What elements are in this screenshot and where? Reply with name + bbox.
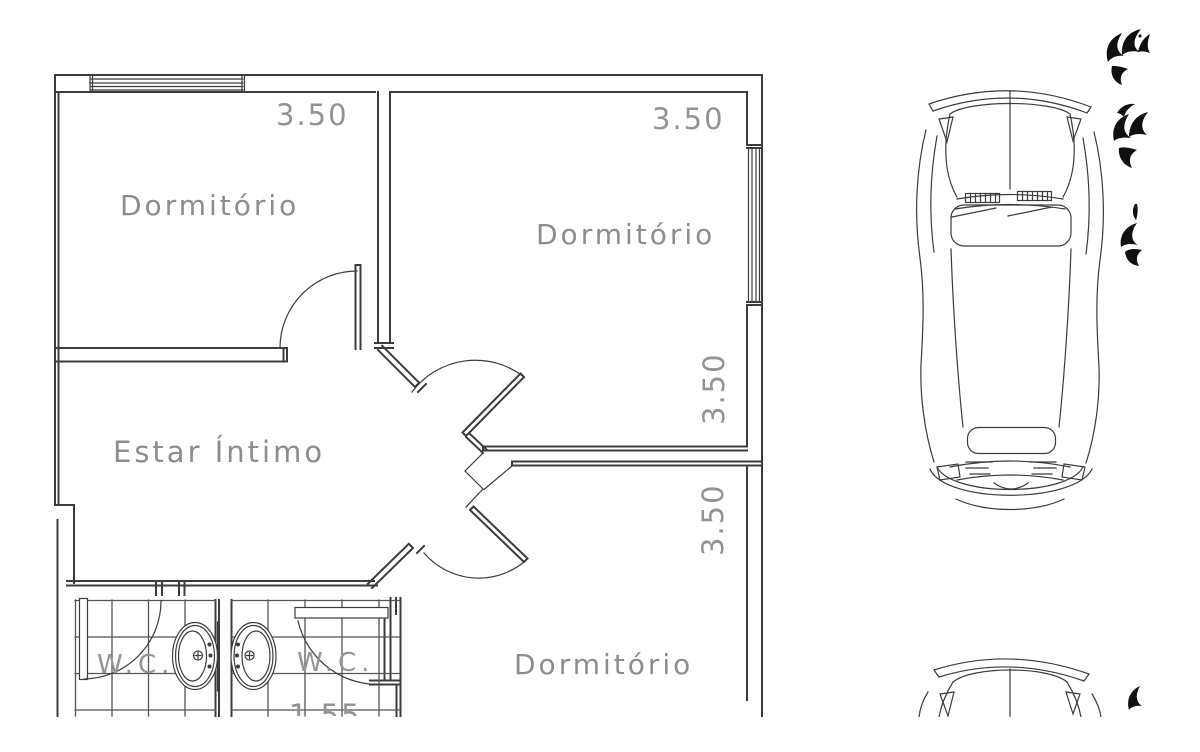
sink-right: [231, 623, 276, 690]
window-top: [90, 76, 245, 93]
room-label-dormitorio-2: Dormitório: [536, 221, 715, 249]
window-right: [749, 148, 760, 302]
dimension-label-bottom-clipped-wrap: 1.55: [289, 701, 367, 716]
room-label-wc-2: W.C.: [297, 650, 374, 676]
room-label-estar-intimo: Estar Íntimo: [113, 438, 325, 467]
walls: [55, 75, 762, 716]
dimension-label-top-left: 3.50: [276, 101, 349, 130]
car-top-view: [917, 91, 1104, 510]
dimension-label-right-upper: 3.50: [700, 353, 734, 425]
floor-plan-page: Dormitório Dormitório Dormitório Estar Í…: [0, 0, 1200, 752]
dimension-label-top-right: 3.50: [652, 105, 725, 134]
floor-plan-drawing: [0, 0, 1200, 752]
sink-left: [173, 622, 218, 691]
car-front-partial: [919, 659, 1101, 717]
room-label-dormitorio-3: Dormitório: [514, 651, 693, 679]
dimension-label-bottom-partial: 1.55: [289, 701, 362, 716]
room-label-wc-1: W.C.: [97, 652, 174, 678]
dimension-label-right-lower: 3.50: [699, 484, 733, 556]
plan-linework: [55, 75, 1103, 717]
room-label-dormitorio-1: Dormitório: [120, 192, 299, 220]
palm-leaves: [1107, 29, 1150, 710]
door-cluster: [280, 271, 528, 578]
